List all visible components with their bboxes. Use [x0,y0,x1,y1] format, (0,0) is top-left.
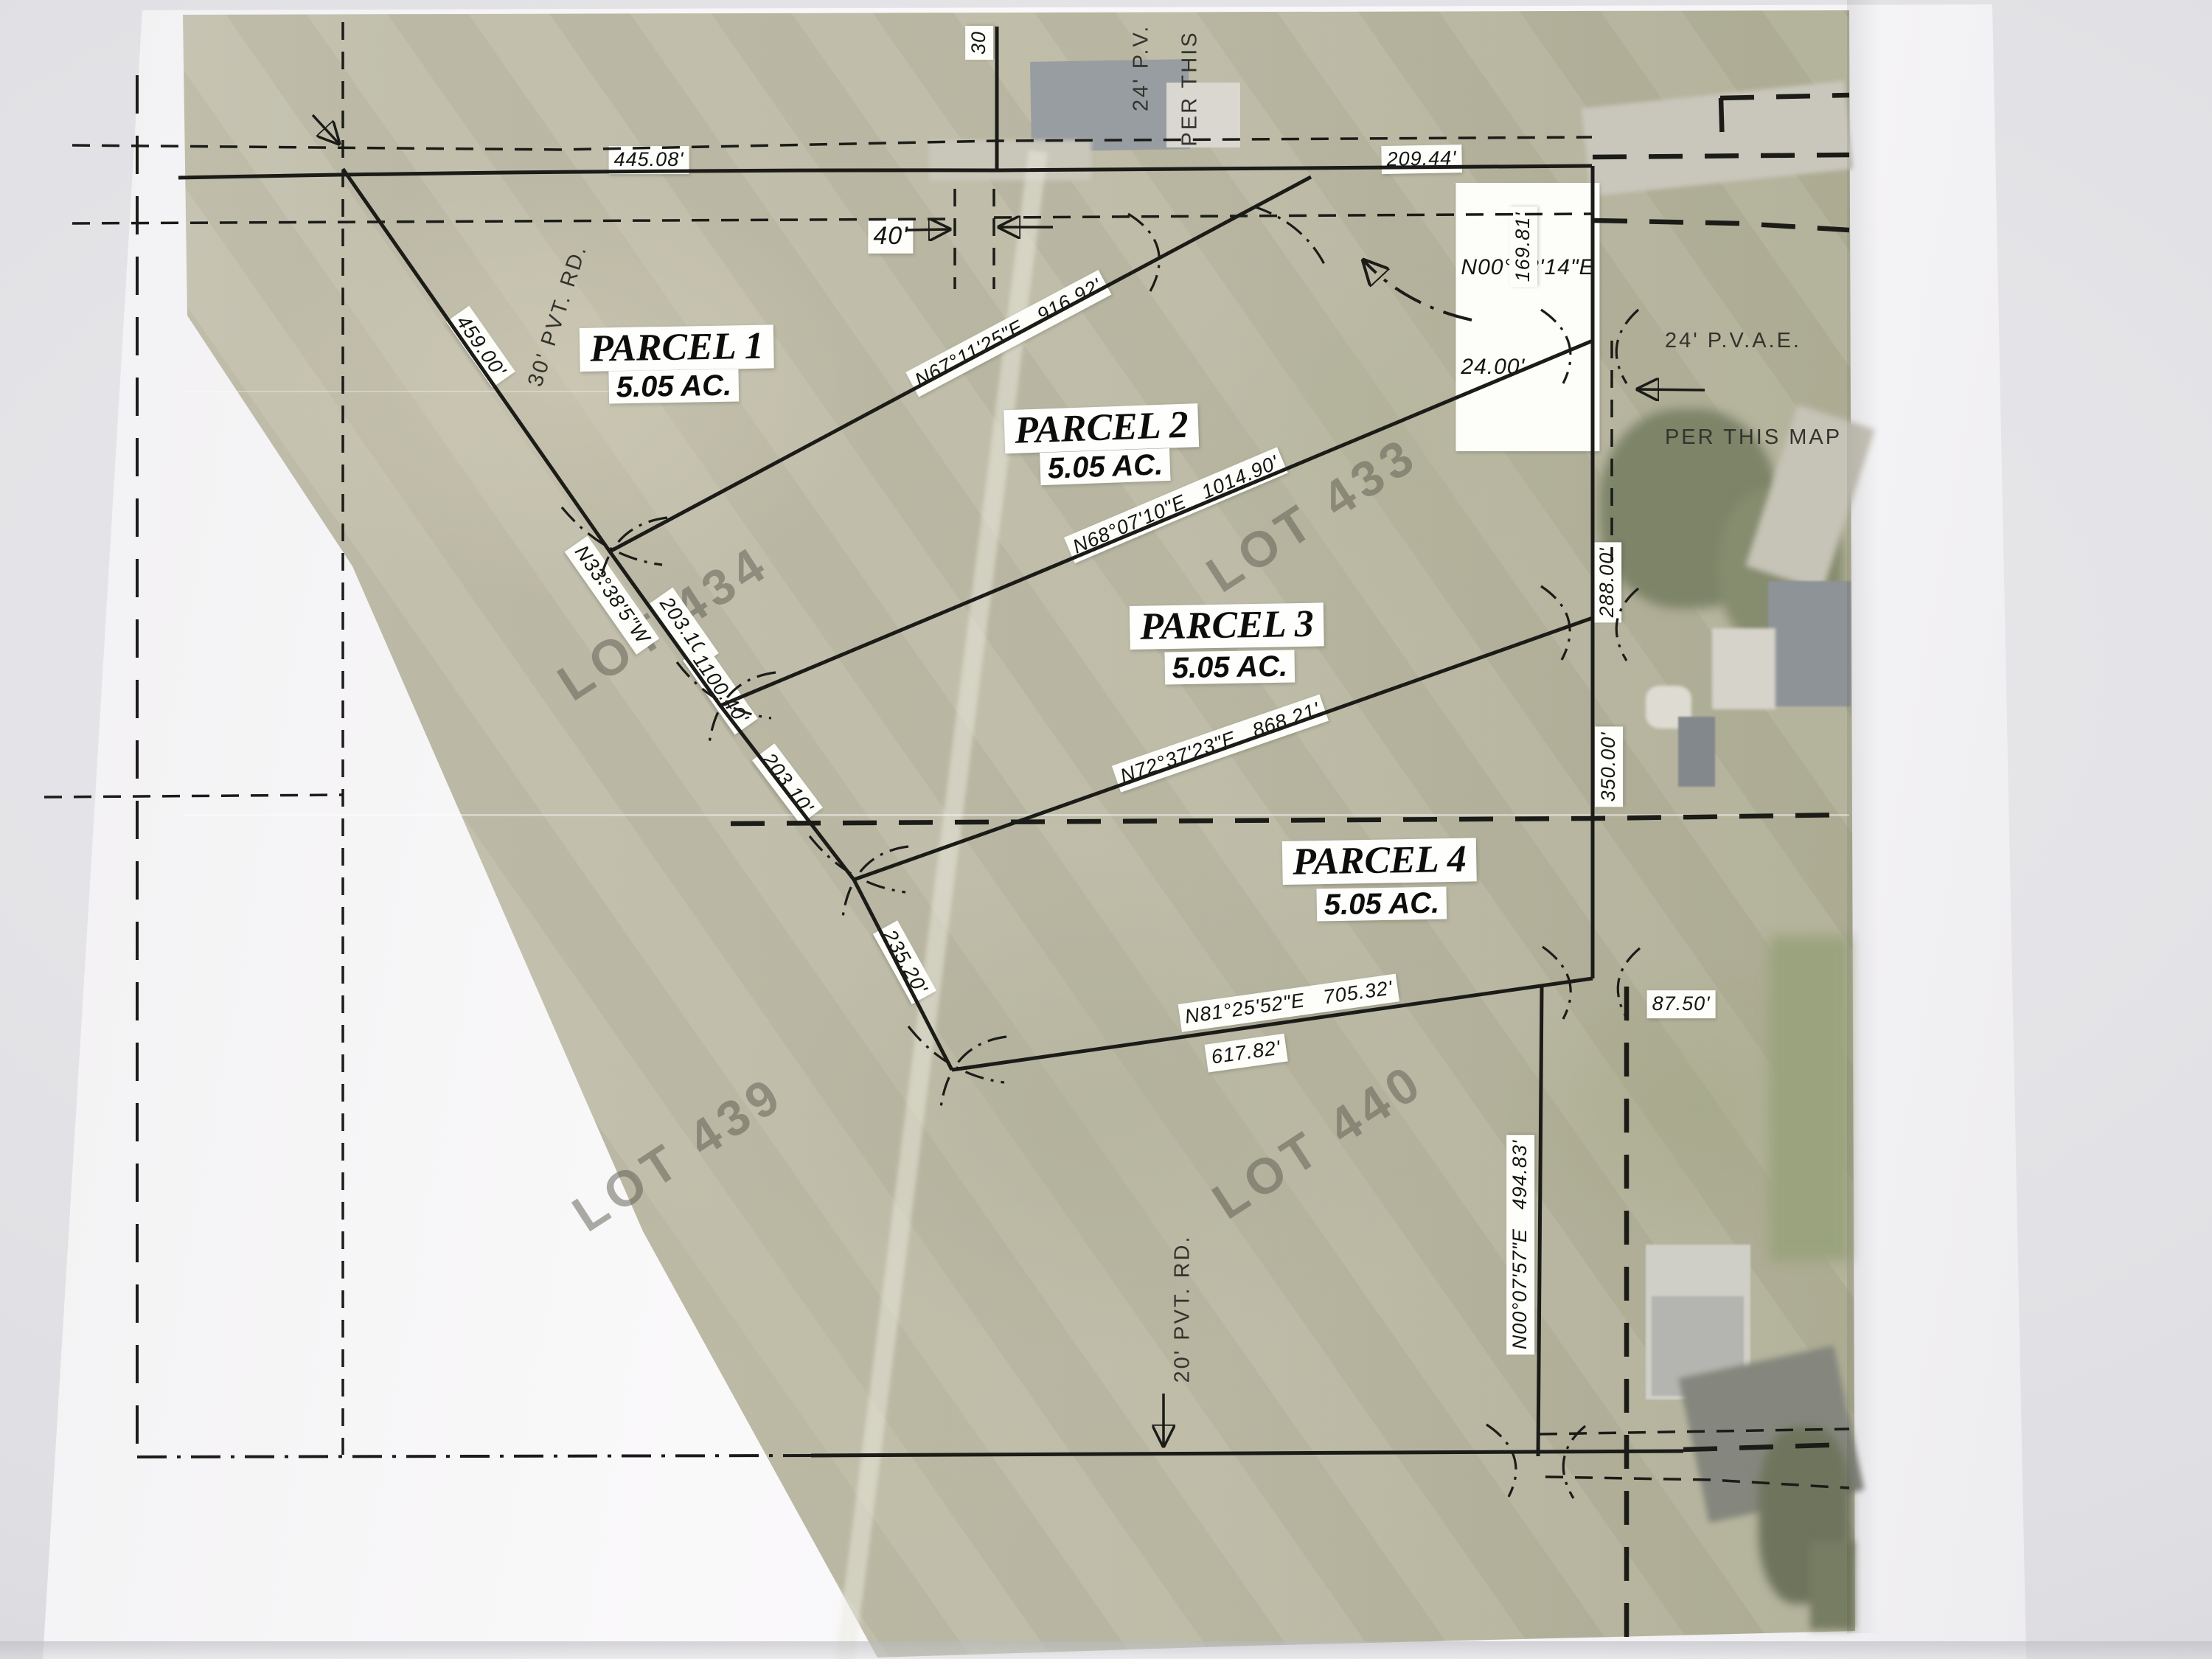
pvae-24-note: 24' P.V.A.E. PER THIS MAP [1665,261,1842,518]
survey-map-photo: LOT 433 LOT 434 LOT 439 LOT 440 445.08' … [0,0,2212,1659]
pvae-24-top-label: 24' P.V. [1125,24,1158,111]
bearing-n00-07-57: N00°07'57"E 494.83' [1506,1135,1534,1354]
parcel-3-name: PARCEL 3 [1130,602,1324,649]
aerial-driveway-right [1712,628,1775,709]
paper-crease [184,814,1849,816]
pvae-24-line1: 24' P.V.A.E. [1665,325,1842,358]
road-20-pvt-label: 20' PVT. RD. [1166,1234,1199,1382]
dim-87-50: 87.50' [1647,990,1716,1018]
parcel-1-name: PARCEL 1 [580,324,774,371]
pvae-24-line2: PER THIS MAP [1665,422,1842,454]
aerial-lawn-right [1770,936,1849,1261]
dim-24-00: 24.00' [1461,350,1594,383]
dim-209-44: 209.44' [1381,145,1461,174]
dim-30-road-width: 30 [965,26,993,60]
parcel-2-name: PARCEL 2 [1004,403,1199,453]
dim-350-00: 350.00' [1595,727,1623,807]
aerial-driveway-top [929,140,1091,181]
dim-40-offset: 40' [868,219,913,254]
dim-288-00: 288.00' [1593,543,1621,623]
parcel-4-name: PARCEL 4 [1282,838,1477,884]
pvae-24-top-label-2: PER THIS [1174,30,1206,146]
parcel-1-area: 5.05 AC. [608,369,739,403]
aerial-house-right [1768,581,1851,706]
aerial-shed-right [1678,717,1715,787]
photo-edge-shadow [1847,0,1879,1633]
dim-169-81: 169.81' [1509,207,1537,288]
photo-bottom-edge [0,1641,2212,1659]
parcel-4-area: 5.05 AC. [1316,886,1447,921]
parcel-2-area: 5.05 AC. [1040,448,1171,485]
dim-445-08: 445.08' [609,146,689,174]
parcel-3-area: 5.05 AC. [1164,650,1295,684]
